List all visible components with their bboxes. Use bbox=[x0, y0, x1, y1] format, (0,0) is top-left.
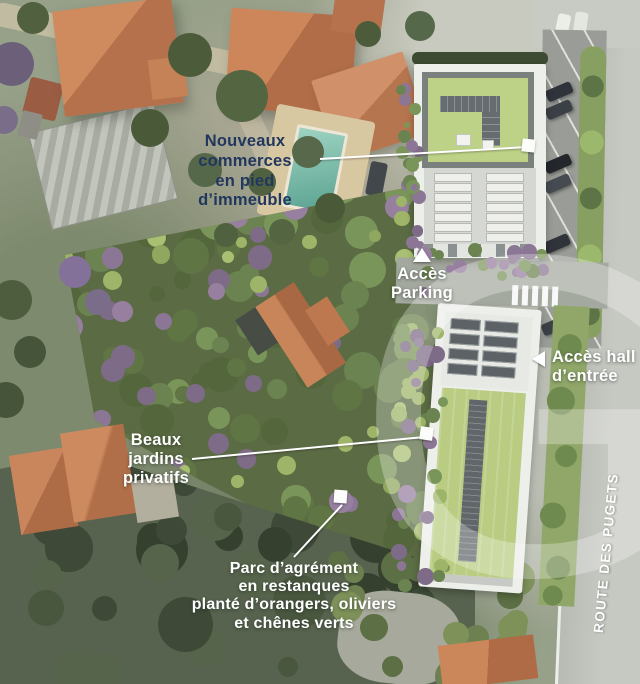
label-parc-agrement: Parc d’agrément en restanques planté d’o… bbox=[174, 560, 414, 633]
solar-panel bbox=[483, 335, 518, 348]
label-nouveaux-commerces: Nouveaux commerces en pied d’immeuble bbox=[160, 132, 330, 211]
label-acces-parking-group: Accès Parking bbox=[372, 248, 472, 303]
tree bbox=[231, 475, 243, 487]
solar-panel bbox=[481, 365, 516, 378]
tree bbox=[258, 527, 292, 561]
solar-panel bbox=[449, 333, 480, 346]
solar-panel bbox=[447, 363, 478, 376]
flowering-shrub bbox=[248, 245, 272, 269]
tree bbox=[212, 337, 228, 353]
tree bbox=[393, 445, 410, 462]
aerial-site-plan: G Nouveaux commerces en pied d’immeuble … bbox=[0, 0, 640, 684]
triangle-left-icon bbox=[532, 351, 545, 367]
solar-panel bbox=[450, 318, 481, 331]
solar-panel bbox=[486, 213, 524, 222]
solar-panel bbox=[448, 348, 479, 361]
tree bbox=[542, 585, 563, 606]
tree bbox=[56, 651, 97, 684]
tree bbox=[394, 211, 409, 226]
building-commerces bbox=[412, 50, 548, 264]
marker-square-commerces bbox=[521, 138, 535, 152]
tree bbox=[580, 187, 602, 209]
tree bbox=[546, 386, 575, 415]
tree bbox=[28, 590, 65, 627]
flowering-shrub bbox=[137, 387, 156, 406]
solar-panel bbox=[434, 213, 472, 222]
tree bbox=[302, 235, 317, 250]
tree bbox=[103, 271, 122, 290]
solar-panel bbox=[434, 223, 472, 232]
solar-panel bbox=[486, 183, 524, 192]
flowering-shrub bbox=[186, 384, 205, 403]
roof-panels bbox=[424, 168, 536, 244]
tree bbox=[236, 237, 247, 248]
solar-panel bbox=[486, 193, 524, 202]
tree bbox=[546, 555, 571, 580]
solar-panel bbox=[486, 233, 524, 242]
solar-panel bbox=[434, 233, 472, 242]
triangle-up-icon bbox=[413, 248, 431, 262]
tree bbox=[173, 238, 209, 274]
tree bbox=[367, 426, 379, 438]
tree bbox=[582, 75, 604, 97]
tree bbox=[580, 130, 604, 154]
tree bbox=[92, 596, 117, 621]
skylight bbox=[456, 134, 471, 146]
flowering-shrub bbox=[208, 283, 225, 300]
tree bbox=[32, 560, 62, 590]
label-acces-hall: Accès hall d’entrée bbox=[552, 348, 636, 386]
tree bbox=[222, 251, 234, 263]
tree bbox=[394, 402, 407, 415]
tree bbox=[152, 245, 171, 264]
solar-panel bbox=[486, 173, 524, 182]
label-beaux-jardins: Beaux jardins privatifs bbox=[96, 431, 216, 488]
building-residence bbox=[418, 303, 542, 594]
tree bbox=[396, 196, 407, 207]
solar-panel bbox=[434, 173, 472, 182]
crosswalk-stripe bbox=[522, 285, 529, 305]
marker-square-jardins bbox=[419, 426, 434, 441]
tree bbox=[539, 502, 566, 529]
tree bbox=[174, 271, 191, 288]
label-acces-hall-group: Accès hall d’entrée bbox=[532, 348, 636, 386]
tree bbox=[261, 418, 288, 445]
house-roof bbox=[148, 56, 189, 100]
label-acces-parking: Accès Parking bbox=[372, 265, 472, 303]
crosswalk-stripe bbox=[532, 286, 539, 306]
crosswalk-stripe bbox=[542, 286, 549, 306]
tree bbox=[554, 445, 577, 468]
solar-panel bbox=[434, 193, 472, 202]
tree bbox=[278, 657, 298, 677]
flowering-shrub bbox=[112, 301, 133, 322]
tree bbox=[277, 456, 297, 476]
solar-panel bbox=[484, 320, 519, 333]
tree bbox=[77, 292, 101, 316]
tree bbox=[332, 380, 363, 411]
crosswalk-stripe bbox=[512, 285, 519, 305]
solar-panels bbox=[440, 312, 533, 392]
crosswalk-stripe bbox=[552, 286, 559, 306]
tree bbox=[230, 414, 259, 443]
flowering-shrub bbox=[250, 227, 266, 243]
solar-panel bbox=[482, 350, 517, 363]
tree bbox=[208, 407, 230, 429]
tree bbox=[383, 478, 400, 495]
flowering-shrub bbox=[102, 247, 124, 269]
tree bbox=[227, 358, 246, 377]
solar-panel bbox=[486, 223, 524, 232]
solar-panel bbox=[434, 183, 472, 192]
marker-square-parc bbox=[334, 490, 348, 504]
solar-panel bbox=[486, 203, 524, 212]
flowering-shrub bbox=[245, 375, 263, 393]
tree bbox=[149, 286, 165, 302]
solar-array bbox=[440, 96, 500, 112]
solar-panel bbox=[434, 203, 472, 212]
tree bbox=[369, 230, 381, 242]
